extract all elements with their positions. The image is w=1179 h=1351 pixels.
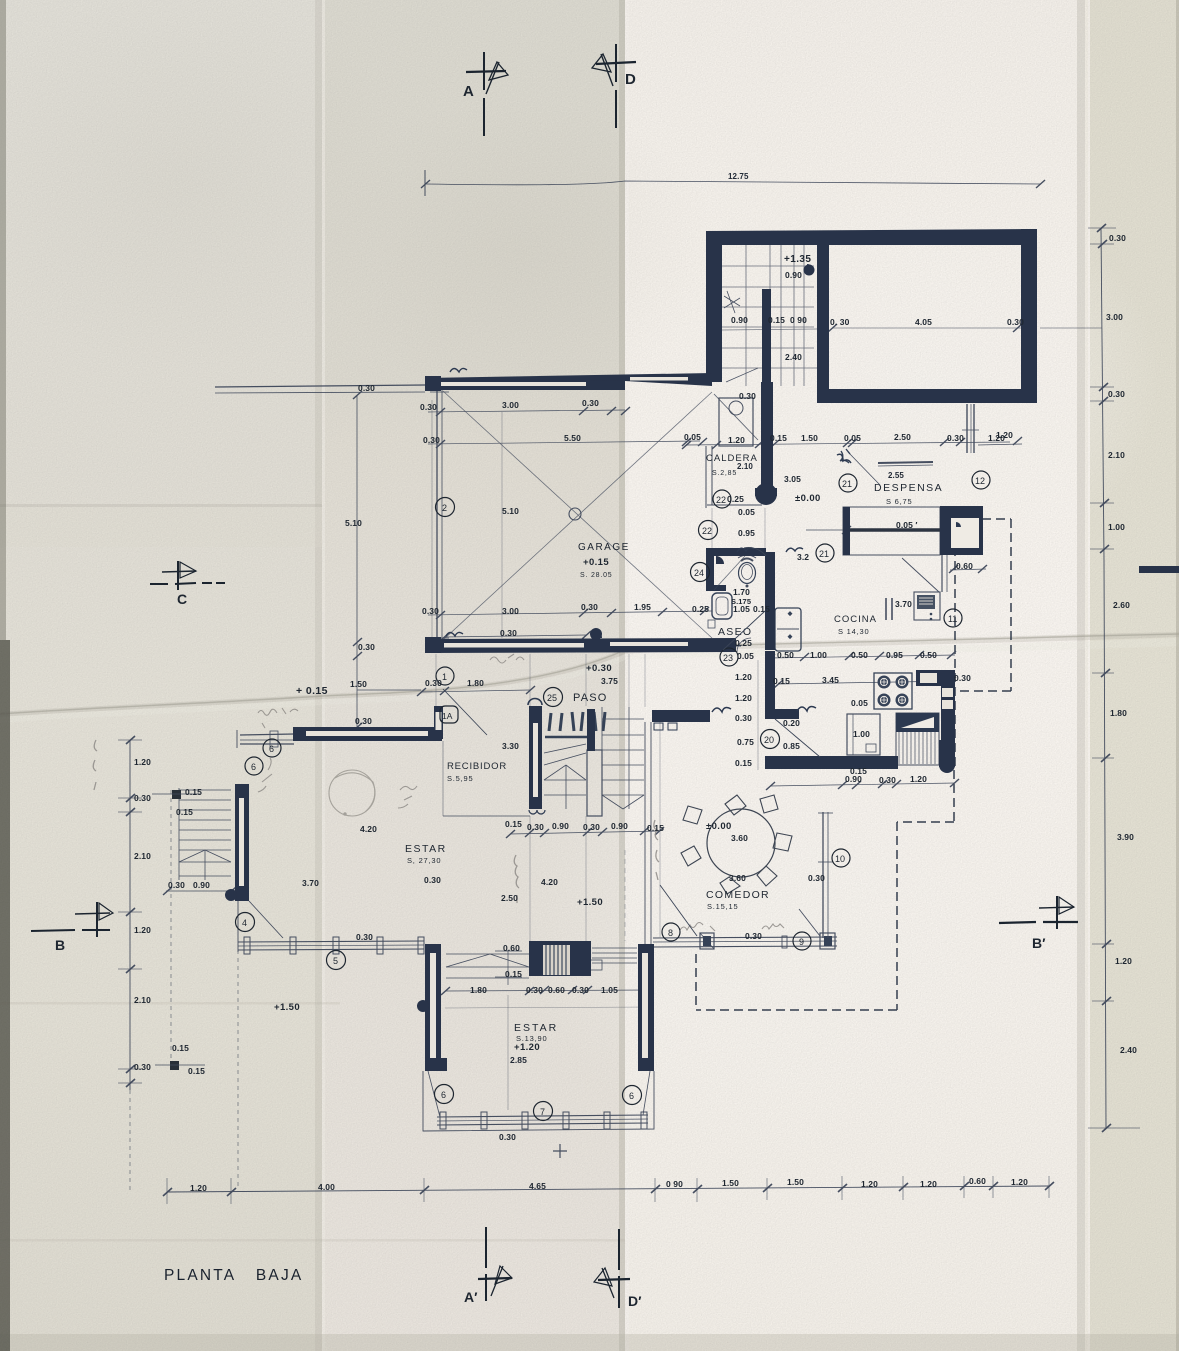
- svg-text:0.90: 0.90: [731, 315, 748, 325]
- svg-text:8: 8: [668, 928, 673, 938]
- svg-text:0.50: 0.50: [777, 650, 794, 660]
- svg-text:4.65: 4.65: [529, 1181, 546, 1191]
- svg-text:+0.15: +0.15: [583, 557, 609, 568]
- svg-text:S.15,15: S.15,15: [707, 902, 738, 911]
- svg-text:3.00: 3.00: [502, 606, 519, 616]
- svg-text:0.60: 0.60: [548, 985, 565, 995]
- svg-text:1.50: 1.50: [801, 433, 818, 443]
- svg-text:3.60: 3.60: [731, 833, 748, 843]
- svg-text:+1.35: +1.35: [784, 254, 811, 265]
- svg-text:1.20: 1.20: [861, 1179, 878, 1189]
- svg-text:S.5,95: S.5,95: [447, 774, 473, 783]
- svg-text:3.70: 3.70: [302, 878, 319, 888]
- svg-text:0.15: 0.15: [188, 1066, 205, 1076]
- svg-text:1.70: 1.70: [733, 587, 750, 597]
- svg-text:0.05: 0.05: [844, 433, 861, 443]
- svg-text:2.50: 2.50: [501, 893, 518, 903]
- svg-text:1.05: 1.05: [733, 604, 750, 614]
- svg-text:3.30: 3.30: [502, 741, 519, 751]
- svg-text:0.30: 0.30: [134, 1062, 151, 1072]
- svg-text:0.95: 0.95: [886, 650, 903, 660]
- svg-text:2: 2: [442, 503, 447, 513]
- svg-text:22: 22: [702, 526, 712, 536]
- svg-text:0.05: 0.05: [851, 698, 868, 708]
- svg-text:DESPENSA: DESPENSA: [874, 482, 943, 494]
- svg-text:0.15: 0.15: [176, 807, 193, 817]
- svg-text:0.15: 0.15: [505, 969, 522, 979]
- svg-text:3.00: 3.00: [502, 400, 519, 410]
- svg-text:0.30: 0.30: [134, 793, 151, 803]
- svg-text:6: 6: [629, 1091, 634, 1101]
- svg-text:0.05: 0.05: [684, 432, 701, 442]
- svg-text:21: 21: [819, 549, 829, 559]
- svg-text:20: 20: [764, 735, 774, 745]
- svg-text:COCINA: COCINA: [834, 614, 877, 625]
- svg-text:3.90: 3.90: [1117, 832, 1134, 842]
- svg-text:2.55: 2.55: [888, 471, 904, 480]
- svg-text:6: 6: [269, 744, 274, 754]
- svg-text:0.95: 0.95: [738, 528, 755, 538]
- svg-text:0.60: 0.60: [503, 943, 520, 953]
- svg-text:0.30: 0.30: [581, 602, 598, 612]
- svg-text:D: D: [625, 71, 636, 88]
- svg-text:PLANTA BAJA: PLANTA BAJA: [164, 1267, 303, 1284]
- svg-text:0.15: 0.15: [172, 1043, 189, 1053]
- svg-text:0.30: 0.30: [527, 822, 544, 832]
- svg-text:0.30: 0.30: [358, 642, 375, 652]
- svg-text:S.2,85: S.2,85: [712, 470, 737, 477]
- svg-text:0.30: 0.30: [358, 383, 375, 393]
- svg-text:0.30: 0.30: [954, 673, 971, 683]
- svg-text:0.05 ′: 0.05 ′: [896, 520, 918, 530]
- svg-text:1.00: 1.00: [810, 650, 827, 660]
- svg-text:10: 10: [835, 854, 845, 864]
- svg-text:21: 21: [842, 479, 852, 489]
- svg-text:1.80: 1.80: [467, 678, 484, 688]
- svg-text:ESTAR: ESTAR: [405, 843, 447, 855]
- svg-text:0.30: 0.30: [572, 985, 589, 995]
- svg-text:+1.20: +1.20: [514, 1042, 540, 1053]
- svg-text:1.20: 1.20: [735, 693, 752, 703]
- svg-text:2.60: 2.60: [1113, 600, 1130, 610]
- svg-text:1A: 1A: [442, 711, 453, 721]
- svg-text:0.30: 0.30: [582, 398, 599, 408]
- svg-text:0.30: 0.30: [420, 402, 437, 412]
- svg-text:0.60: 0.60: [969, 1176, 986, 1186]
- svg-text:12.75: 12.75: [728, 172, 749, 181]
- svg-text:5.10: 5.10: [502, 506, 519, 516]
- svg-text:PASO: PASO: [573, 692, 608, 704]
- svg-text:0.30: 0.30: [879, 775, 896, 785]
- svg-text:S, 27,30: S, 27,30: [407, 856, 441, 865]
- svg-text:+ 0.15: + 0.15: [296, 685, 328, 697]
- svg-text:23: 23: [723, 653, 733, 663]
- svg-text:1: 1: [442, 672, 447, 682]
- svg-text:22: 22: [716, 495, 726, 505]
- svg-text:5.10: 5.10: [345, 518, 362, 528]
- svg-text:S. 28.05: S. 28.05: [580, 572, 612, 579]
- svg-text:0.85: 0.85: [783, 741, 800, 751]
- svg-text:3.05: 3.05: [784, 474, 801, 484]
- svg-text:+1.50: +1.50: [577, 897, 603, 908]
- svg-text:0.30: 0.30: [356, 932, 373, 942]
- svg-text:1.20: 1.20: [920, 1179, 937, 1189]
- svg-text:0.90: 0.90: [552, 821, 569, 831]
- svg-text:0.25: 0.25: [692, 604, 709, 614]
- svg-text:0.20: 0.20: [783, 718, 800, 728]
- svg-text:0.15: 0.15: [505, 819, 522, 829]
- svg-text:0.15: 0.15: [753, 604, 770, 614]
- svg-text:1.20: 1.20: [735, 672, 752, 682]
- svg-text:2.85: 2.85: [510, 1055, 527, 1065]
- svg-text:1.20: 1.20: [996, 430, 1013, 440]
- svg-text:3.60: 3.60: [729, 873, 746, 883]
- svg-text:3.70: 3.70: [895, 599, 912, 609]
- svg-text:3.00: 3.00: [1106, 312, 1123, 322]
- svg-text:1.20: 1.20: [910, 774, 927, 784]
- svg-text:0. 30: 0. 30: [830, 317, 850, 327]
- svg-text:0.05: 0.05: [737, 651, 754, 661]
- svg-text:3.75: 3.75: [601, 676, 618, 686]
- svg-text:0.25: 0.25: [735, 638, 752, 648]
- svg-text:0.90: 0.90: [193, 880, 210, 890]
- svg-text:2.10: 2.10: [1108, 450, 1125, 460]
- svg-text:±0.00: ±0.00: [706, 821, 732, 832]
- svg-text:0 90: 0 90: [666, 1179, 683, 1189]
- svg-text:0.15: 0.15: [768, 315, 785, 325]
- svg-text:6: 6: [251, 762, 256, 772]
- svg-text:3.2: 3.2: [797, 552, 809, 562]
- svg-text:2.10: 2.10: [737, 462, 753, 471]
- svg-text:0.30: 0.30: [1109, 233, 1126, 243]
- svg-text:1.20: 1.20: [1011, 1177, 1028, 1187]
- svg-text:0.15: 0.15: [773, 676, 790, 686]
- svg-text:0.30: 0.30: [355, 716, 372, 726]
- svg-text:C: C: [177, 591, 187, 607]
- svg-text:0.30: 0.30: [526, 985, 543, 995]
- svg-text:1.95: 1.95: [634, 602, 651, 612]
- svg-text:0.30: 0.30: [1108, 389, 1125, 399]
- svg-text:0.30: 0.30: [423, 435, 440, 445]
- svg-text:1.00: 1.00: [853, 729, 870, 739]
- svg-text:0.30: 0.30: [735, 713, 752, 723]
- svg-text:A′: A′: [464, 1289, 478, 1305]
- svg-text:0.30: 0.30: [583, 822, 600, 832]
- svg-text:1.50: 1.50: [787, 1177, 804, 1187]
- svg-text:25: 25: [547, 693, 557, 703]
- svg-text:1.05: 1.05: [601, 985, 618, 995]
- svg-text:0.30: 0.30: [808, 873, 825, 883]
- svg-text:0.15: 0.15: [185, 787, 202, 797]
- svg-text:1.20: 1.20: [190, 1183, 207, 1193]
- svg-text:1.20: 1.20: [728, 435, 745, 445]
- svg-text:0.60: 0.60: [956, 561, 973, 571]
- svg-text:0.25: 0.25: [727, 494, 744, 504]
- svg-text:0.30: 0.30: [168, 880, 185, 890]
- svg-text:RECIBIDOR: RECIBIDOR: [447, 761, 507, 772]
- svg-text:9: 9: [799, 937, 804, 947]
- svg-text:0.30: 0.30: [739, 391, 756, 401]
- svg-text:2.10: 2.10: [134, 995, 151, 1005]
- svg-text:1.80: 1.80: [1110, 708, 1127, 718]
- svg-text:S 14,30: S 14,30: [838, 627, 869, 636]
- svg-text:B′: B′: [1032, 935, 1046, 951]
- svg-text:1.20: 1.20: [1115, 956, 1132, 966]
- svg-text:2.40: 2.40: [785, 352, 802, 362]
- svg-text:1.20: 1.20: [134, 925, 151, 935]
- svg-text:2.40: 2.40: [1120, 1045, 1137, 1055]
- svg-text:ESTAR: ESTAR: [514, 1022, 558, 1034]
- svg-text:1.00: 1.00: [1108, 522, 1125, 532]
- svg-text:±0.00: ±0.00: [795, 493, 821, 504]
- svg-text:0.30: 0.30: [947, 433, 964, 443]
- svg-text:4.20: 4.20: [541, 877, 558, 887]
- svg-text:7: 7: [540, 1107, 545, 1117]
- svg-text:0.50: 0.50: [920, 650, 937, 660]
- svg-text:0.15: 0.15: [770, 433, 787, 443]
- svg-text:A: A: [463, 83, 474, 100]
- svg-text:0.30: 0.30: [499, 1132, 516, 1142]
- svg-text:12: 12: [975, 476, 985, 486]
- svg-text:0.15: 0.15: [735, 758, 752, 768]
- svg-text:0.15: 0.15: [647, 823, 664, 833]
- svg-text:COMEDOR: COMEDOR: [706, 889, 770, 901]
- svg-text:0.90: 0.90: [785, 270, 802, 280]
- svg-text:5: 5: [333, 956, 338, 966]
- svg-text:D′: D′: [628, 1293, 642, 1309]
- svg-text:5.50: 5.50: [564, 433, 581, 443]
- svg-text:2.50: 2.50: [894, 432, 911, 442]
- svg-text:4.05: 4.05: [915, 317, 932, 327]
- svg-text:+0.30: +0.30: [586, 663, 612, 674]
- svg-text:0.90: 0.90: [845, 774, 862, 784]
- svg-text:4: 4: [242, 918, 247, 928]
- svg-text:0.30: 0.30: [422, 606, 439, 616]
- svg-text:S 6,75: S 6,75: [886, 497, 912, 506]
- svg-text:0.30: 0.30: [1007, 317, 1024, 327]
- svg-text:0.05: 0.05: [738, 507, 755, 517]
- svg-text:4.20: 4.20: [360, 824, 377, 834]
- svg-text:0.90: 0.90: [611, 821, 628, 831]
- svg-text:0.30: 0.30: [745, 931, 762, 941]
- svg-text:1.50: 1.50: [722, 1178, 739, 1188]
- svg-text:11: 11: [948, 614, 957, 624]
- svg-text:4.00: 4.00: [318, 1182, 335, 1192]
- svg-text:0 90: 0 90: [790, 315, 807, 325]
- svg-text:0.30: 0.30: [500, 628, 517, 638]
- svg-text:+1.50: +1.50: [274, 1002, 300, 1013]
- svg-text:0.75: 0.75: [737, 737, 754, 747]
- svg-text:3.45: 3.45: [822, 675, 839, 685]
- svg-text:2.10: 2.10: [134, 851, 151, 861]
- svg-text:0.30: 0.30: [424, 875, 441, 885]
- svg-text:1.80: 1.80: [470, 985, 487, 995]
- svg-text:B: B: [55, 937, 65, 953]
- svg-text:1.20: 1.20: [134, 757, 151, 767]
- svg-text:GARAGE: GARAGE: [578, 542, 630, 553]
- svg-text:1.50: 1.50: [350, 679, 367, 689]
- svg-text:0.50: 0.50: [851, 650, 868, 660]
- svg-text:6: 6: [441, 1090, 446, 1100]
- svg-text:24: 24: [694, 568, 704, 578]
